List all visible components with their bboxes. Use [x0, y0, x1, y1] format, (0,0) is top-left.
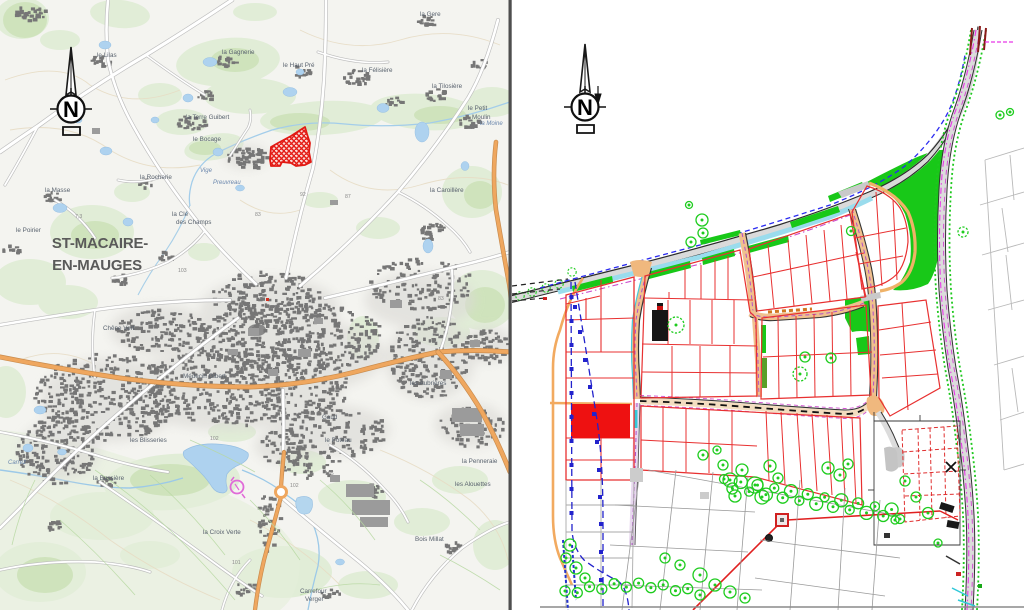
- svg-text:la Rocherie: la Rocherie: [140, 174, 172, 181]
- svg-text:103: 103: [178, 268, 187, 274]
- svg-text:la Terre Guibert: la Terre Guibert: [186, 114, 230, 121]
- svg-text:92: 92: [300, 192, 306, 198]
- svg-text:ST-MACAIRE-: ST-MACAIRE-: [52, 235, 148, 252]
- svg-text:la Caroillère: la Caroillère: [430, 187, 464, 194]
- svg-text:Preuvreau: Preuvreau: [213, 180, 241, 186]
- svg-text:la Masse: la Masse: [45, 187, 71, 194]
- svg-text:Carrefour: Carrefour: [300, 588, 327, 595]
- svg-text:Chêne Vert: Chêne Vert: [103, 325, 135, 332]
- svg-text:la Gagnerie: la Gagnerie: [222, 49, 255, 56]
- svg-text:la Tilosière: la Tilosière: [432, 83, 463, 90]
- svg-text:Verger: Verger: [305, 596, 324, 603]
- svg-text:le Poteau: le Poteau: [325, 437, 352, 444]
- svg-text:7,3: 7,3: [75, 214, 82, 220]
- svg-text:N: N: [63, 97, 79, 122]
- svg-text:Médecin Gibert: Médecin Gibert: [183, 373, 226, 380]
- svg-text:Bois Millat: Bois Millat: [415, 536, 444, 543]
- svg-text:des Champs: des Champs: [176, 219, 211, 226]
- svg-text:la Gere: la Gere: [420, 11, 441, 18]
- svg-text:le Poirier: le Poirier: [16, 227, 41, 234]
- svg-text:101: 101: [232, 560, 241, 566]
- svg-text:83: 83: [255, 212, 261, 218]
- svg-text:Vige: Vige: [200, 168, 213, 174]
- svg-text:le Lilas: le Lilas: [97, 52, 117, 59]
- svg-text:87: 87: [345, 194, 351, 200]
- svg-text:la Moine: la Moine: [480, 121, 503, 127]
- svg-text:102: 102: [210, 436, 219, 442]
- svg-text:105: 105: [325, 471, 334, 477]
- svg-text:le Petit: le Petit: [468, 105, 488, 112]
- svg-text:la Félisière: la Félisière: [362, 67, 393, 74]
- svg-text:la Bussière: la Bussière: [93, 475, 125, 482]
- svg-text:la Clé: la Clé: [172, 211, 189, 218]
- svg-text:le Haut Pré: le Haut Pré: [283, 62, 315, 69]
- svg-text:la Penneraie: la Penneraie: [462, 458, 498, 465]
- svg-text:Moulin: Moulin: [472, 114, 491, 121]
- svg-text:les Alouettes: les Alouettes: [455, 481, 491, 488]
- svg-text:les Blisseries: les Blisseries: [130, 437, 167, 444]
- svg-text:le Bocage: le Bocage: [193, 136, 222, 143]
- svg-text:Carrez: Carrez: [8, 460, 26, 466]
- svg-text:83: 83: [438, 296, 444, 302]
- svg-text:Gaud: Gaud: [322, 414, 338, 421]
- svg-text:les Aubrières: les Aubrières: [410, 380, 446, 387]
- svg-text:N: N: [577, 95, 593, 120]
- svg-text:EN-MAUGES: EN-MAUGES: [52, 257, 142, 274]
- svg-text:102: 102: [290, 483, 299, 489]
- svg-text:la Croix Verte: la Croix Verte: [203, 529, 241, 536]
